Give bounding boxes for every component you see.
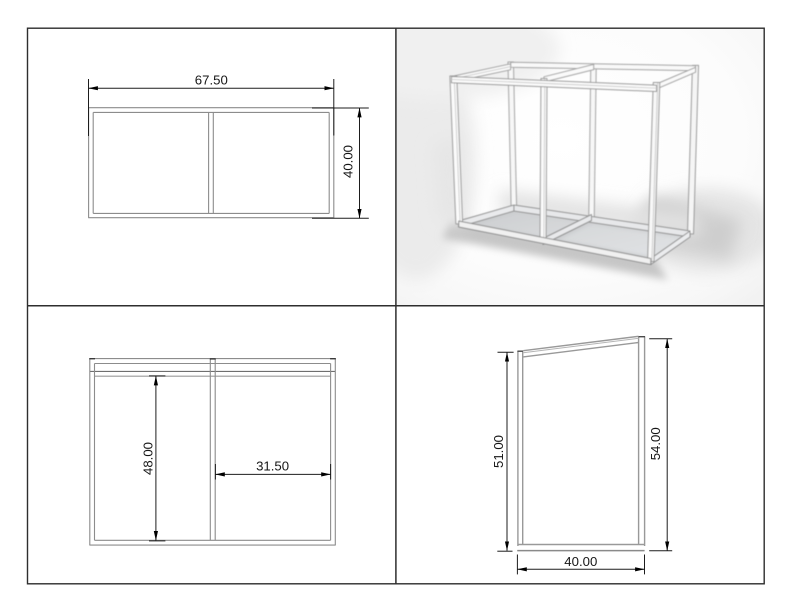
svg-text:31.50: 31.50 bbox=[256, 459, 289, 474]
svg-text:40.00: 40.00 bbox=[564, 554, 597, 569]
svg-text:54.00: 54.00 bbox=[648, 427, 663, 460]
svg-text:67.50: 67.50 bbox=[195, 73, 228, 88]
svg-text:51.00: 51.00 bbox=[491, 435, 506, 468]
svg-text:48.00: 48.00 bbox=[141, 442, 156, 475]
svg-text:40.00: 40.00 bbox=[340, 145, 355, 178]
